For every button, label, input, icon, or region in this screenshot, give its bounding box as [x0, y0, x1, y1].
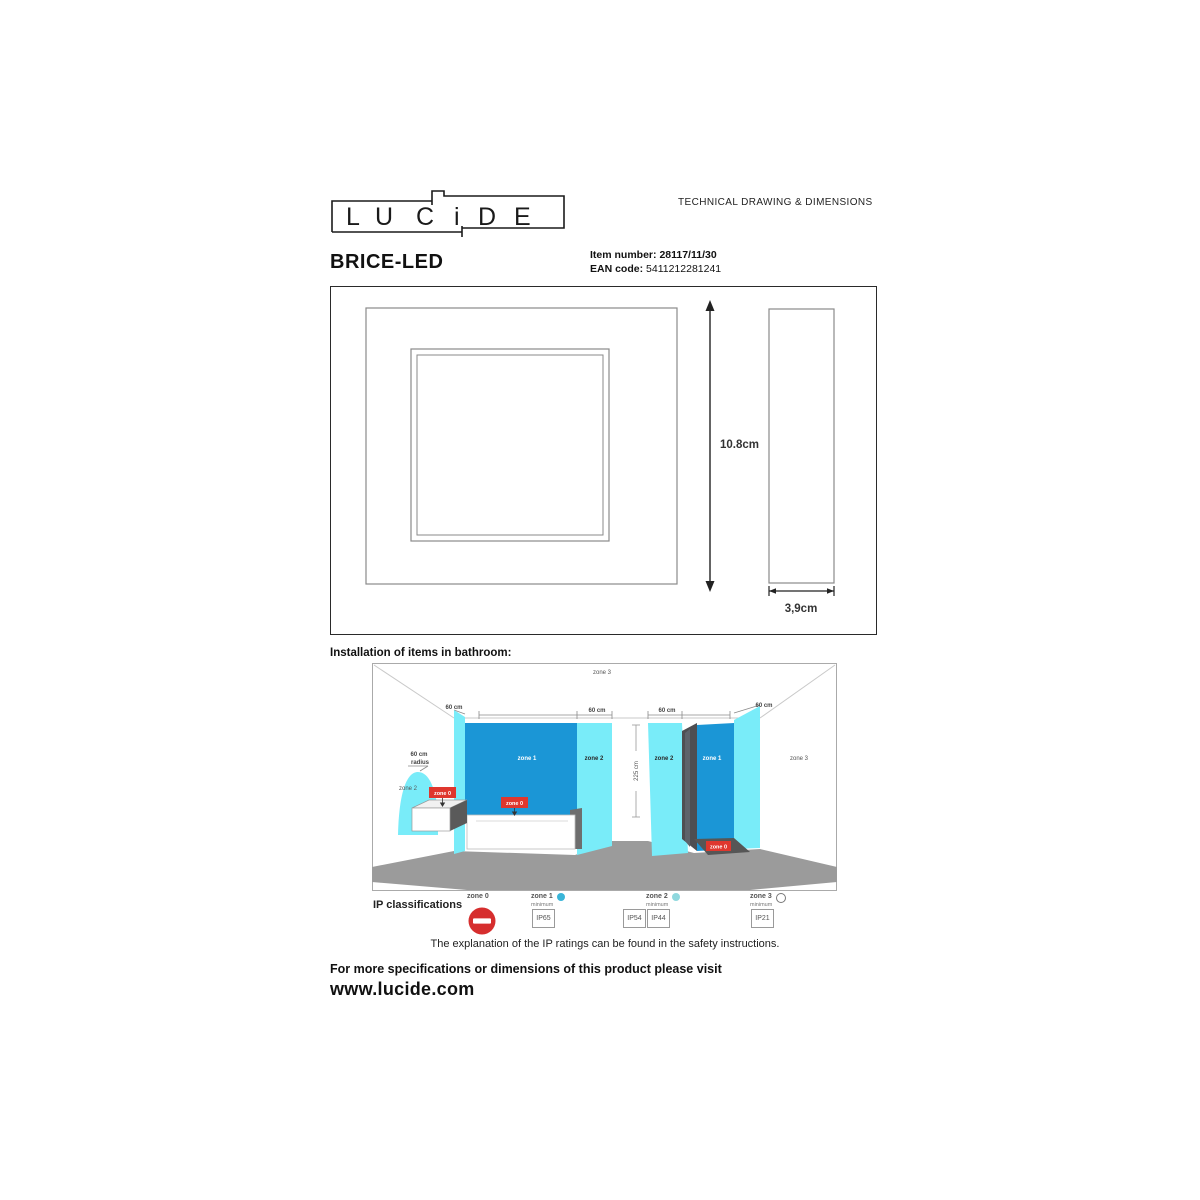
zone3-wall-label: zone 3: [790, 756, 809, 762]
radius-label-2: radius: [411, 760, 430, 766]
zone2-right-wall-strip: [734, 706, 760, 849]
logo-letter: E: [514, 203, 531, 231]
arrow-down-icon: [706, 581, 715, 592]
item-number-label: Item number:: [590, 249, 657, 261]
zone2-dot-icon: [672, 893, 680, 901]
zone2-bath-label: zone 2: [585, 756, 604, 762]
item-number-row: Item number: 28117/11/30: [590, 248, 721, 262]
product-name: BRICE-LED: [330, 251, 443, 274]
logo-outline-right: [432, 191, 564, 228]
depth-dimension-arrow: [769, 586, 834, 596]
zone0-label: zone 0: [434, 791, 451, 797]
zone1-bath-label: zone 1: [518, 756, 537, 762]
dim-60cm-label: 60 cm: [658, 708, 675, 714]
bathroom-section-title: Installation of items in bathroom:: [330, 647, 511, 659]
ip54-rating-box: IP54: [623, 909, 646, 928]
zone3-circle-icon: [776, 893, 786, 903]
basin-front: [412, 808, 450, 831]
zone2-shower-label: zone 2: [655, 756, 674, 762]
legend-zone1-minimum: minimum: [531, 902, 553, 908]
ean-value: 5411212281241: [646, 263, 721, 275]
website-link[interactable]: www.lucide.com: [330, 979, 475, 1000]
zone2-arch-label: zone 2: [399, 786, 418, 792]
footer-text: For more specifications or dimensions of…: [330, 962, 722, 976]
document-title: TECHNICAL DRAWING & DIMENSIONS: [678, 197, 873, 208]
lucide-logo: L U C i D E: [330, 189, 566, 241]
radius-label-1: 60 cm: [410, 752, 427, 758]
ip65-rating-box: IP65: [532, 909, 555, 928]
arrow-right-icon: [827, 588, 834, 594]
logo-letter: i: [454, 203, 460, 231]
legend-zone0-label: zone 0: [467, 893, 489, 900]
depth-dimension-label: 3,9cm: [785, 603, 818, 615]
logo-letter: C: [416, 203, 434, 231]
logo-letter: L: [346, 203, 360, 231]
zone1-dot-icon: [557, 893, 565, 901]
side-view-rect: [769, 309, 834, 583]
arrow-left-icon: [769, 588, 776, 594]
ip44-rating-box: IP44: [647, 909, 670, 928]
legend-zone2-label: zone 2: [646, 893, 668, 900]
legend-zone3-label: zone 3: [750, 893, 772, 900]
door-height-label: 225 cm: [634, 761, 640, 781]
bath-tub: [467, 815, 575, 849]
zone2-bath-column: [577, 723, 612, 855]
legend-title: IP classifications: [373, 899, 462, 911]
shower-door-highlight: [685, 729, 690, 847]
technical-drawing: 10.8cm 3,9cm: [331, 287, 876, 634]
logo-letter: U: [375, 203, 393, 231]
legend-zone2-minimum: minimum: [646, 902, 668, 908]
arrow-up-icon: [706, 300, 715, 311]
legend-zone1-label: zone 1: [531, 893, 553, 900]
ip-ratings-note: The explanation of the IP ratings can be…: [340, 938, 870, 950]
legend-zone3-minimum: minimum: [750, 902, 772, 908]
dim-60cm-label: 60 cm: [588, 708, 605, 714]
bathroom-zones-diagram: zone 3 60 cm 60 cm 60 cm 60 cm 60 cm rad…: [372, 663, 837, 891]
zone3-ceiling-label: zone 3: [593, 670, 612, 676]
zone1-shower-wall: [697, 723, 734, 851]
ean-label: EAN code:: [590, 263, 643, 275]
dim-60cm-label: 60 cm: [445, 705, 462, 711]
ip21-rating-box: IP21: [751, 909, 774, 928]
dim-60cm-label: 60 cm: [755, 703, 772, 709]
no-entry-icon: [467, 906, 497, 936]
technical-sheet-page: L U C i D E TECHNICAL DRAWING & DIMENSIO…: [0, 0, 1200, 1200]
logo-letter: D: [478, 203, 496, 231]
ean-row: EAN code: 5411212281241: [590, 262, 721, 276]
product-meta: Item number: 28117/11/30 EAN code: 54112…: [590, 248, 721, 276]
height-dimension-label: 10.8cm: [720, 439, 759, 451]
zone0-label: zone 0: [710, 845, 727, 851]
zone2-left-wall-strip: [454, 710, 465, 854]
front-view-inner-square-2: [417, 355, 603, 535]
technical-drawing-panel: 10.8cm 3,9cm: [330, 286, 877, 635]
item-number-value: 28117/11/30: [659, 249, 716, 261]
zone1-shower-label: zone 1: [703, 756, 722, 762]
zone0-label: zone 0: [506, 801, 523, 807]
